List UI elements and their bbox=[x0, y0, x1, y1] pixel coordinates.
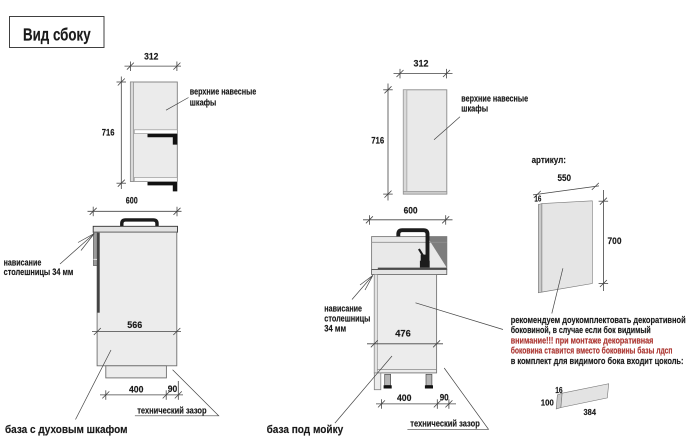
svg-text:Вид сбоку: Вид сбоку bbox=[23, 25, 91, 45]
svg-text:312: 312 bbox=[144, 51, 158, 61]
svg-text:артикул:: артикул: bbox=[532, 155, 566, 165]
svg-text:боковина ставится вместо боков: боковина ставится вместо боковины базы л… bbox=[511, 346, 673, 356]
svg-text:100: 100 bbox=[541, 398, 554, 408]
svg-text:384: 384 bbox=[584, 407, 597, 417]
svg-text:база под мойку: база под мойку bbox=[267, 424, 344, 436]
svg-text:476: 476 bbox=[395, 329, 411, 339]
svg-text:566: 566 bbox=[127, 320, 142, 330]
svg-text:технический зазор: технический зазор bbox=[410, 419, 480, 429]
svg-text:90: 90 bbox=[440, 393, 449, 403]
svg-text:внимание!!! при монтаже декора: внимание!!! при монтаже декоративная bbox=[511, 335, 654, 345]
svg-text:16: 16 bbox=[534, 193, 541, 203]
svg-text:550: 550 bbox=[558, 173, 572, 183]
svg-text:400: 400 bbox=[397, 393, 412, 403]
svg-text:16: 16 bbox=[555, 385, 563, 395]
svg-text:технический зазор: технический зазор bbox=[137, 405, 207, 415]
svg-text:600: 600 bbox=[404, 206, 418, 216]
svg-text:рекомендуем доукомплектовать д: рекомендуем доукомплектовать декоративно… bbox=[511, 315, 686, 325]
svg-text:боковиной, в случае если бок в: боковиной, в случае если бок видимый bbox=[511, 325, 651, 335]
svg-text:база с духовым шкафом: база с духовым шкафом bbox=[5, 424, 128, 436]
svg-text:столешницы 34 мм: столешницы 34 мм bbox=[4, 267, 74, 277]
svg-text:34 мм: 34 мм bbox=[324, 323, 346, 333]
svg-text:шкафы: шкафы bbox=[461, 104, 488, 114]
svg-text:верхние навесные: верхние навесные bbox=[461, 94, 528, 104]
svg-text:в комплект для видимого бока в: в комплект для видимого бока входит цоко… bbox=[511, 356, 684, 366]
svg-text:600: 600 bbox=[126, 196, 138, 206]
svg-text:312: 312 bbox=[414, 58, 429, 68]
svg-text:верхние навесные: верхние навесные bbox=[190, 86, 256, 96]
svg-text:столешницы: столешницы bbox=[324, 313, 370, 323]
svg-text:716: 716 bbox=[371, 136, 384, 146]
svg-text:нависание: нависание bbox=[324, 303, 362, 313]
svg-text:700: 700 bbox=[608, 236, 622, 246]
svg-text:716: 716 bbox=[102, 127, 115, 137]
svg-text:400: 400 bbox=[129, 385, 144, 395]
svg-text:нависание: нависание bbox=[4, 257, 42, 267]
svg-text:шкафы: шкафы bbox=[190, 98, 217, 108]
